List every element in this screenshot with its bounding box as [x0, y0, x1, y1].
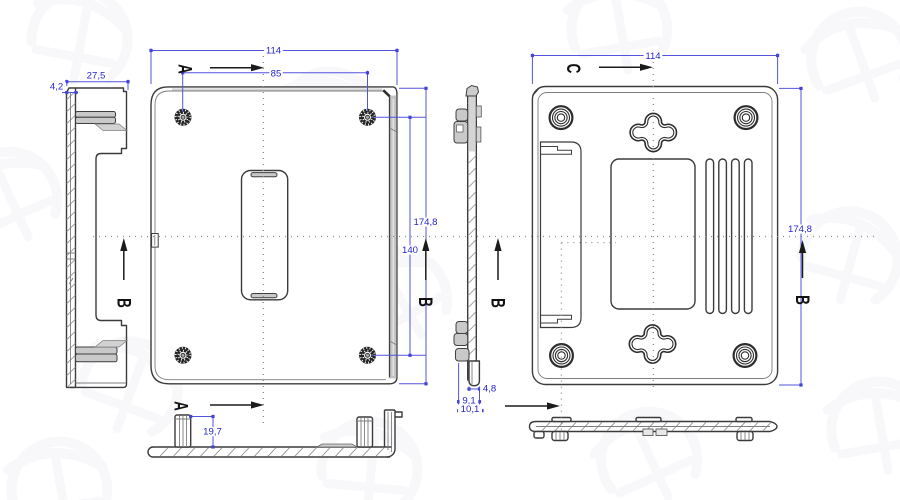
svg-text:A: A — [170, 401, 192, 411]
svg-text:140: 140 — [402, 245, 418, 256]
svg-text:4,2: 4,2 — [50, 81, 63, 92]
svg-text:174,8: 174,8 — [788, 224, 812, 235]
svg-text:4,8: 4,8 — [483, 383, 496, 394]
svg-text:19,7: 19,7 — [203, 426, 222, 437]
svg-text:B: B — [414, 297, 436, 307]
svg-text:114: 114 — [266, 45, 282, 56]
svg-text:B: B — [113, 298, 135, 308]
svg-text:114: 114 — [645, 51, 661, 62]
svg-text:85: 85 — [271, 68, 282, 79]
svg-text:B: B — [791, 295, 813, 305]
svg-text:174,8: 174,8 — [413, 217, 437, 228]
svg-text:10,1: 10,1 — [461, 404, 480, 415]
svg-text:A: A — [174, 64, 196, 74]
svg-text:27,5: 27,5 — [87, 70, 106, 81]
svg-text:B: B — [487, 298, 509, 308]
svg-text:C: C — [562, 64, 584, 74]
